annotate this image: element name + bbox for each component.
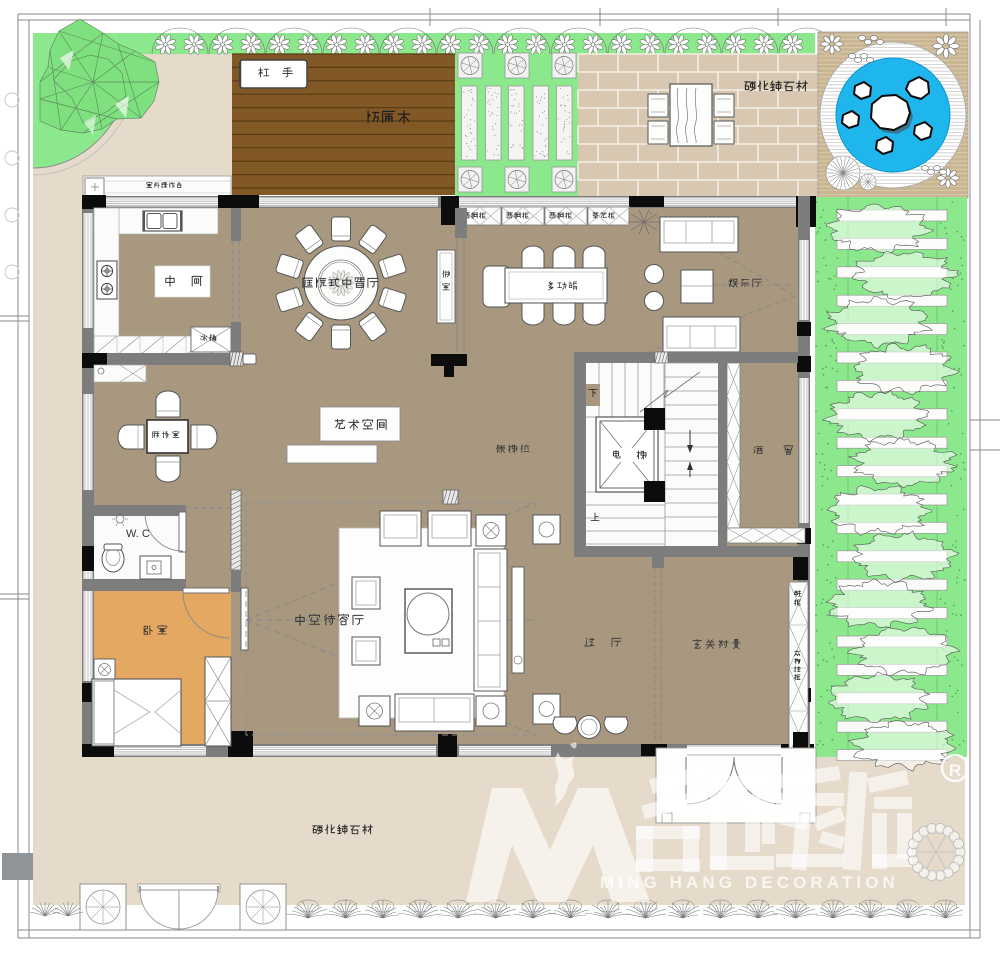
svg-text:MING HANG DECORATION: MING HANG DECORATION [600, 873, 899, 892]
svg-text:R: R [949, 761, 961, 780]
svg-text:W. C: W. C [126, 528, 150, 540]
